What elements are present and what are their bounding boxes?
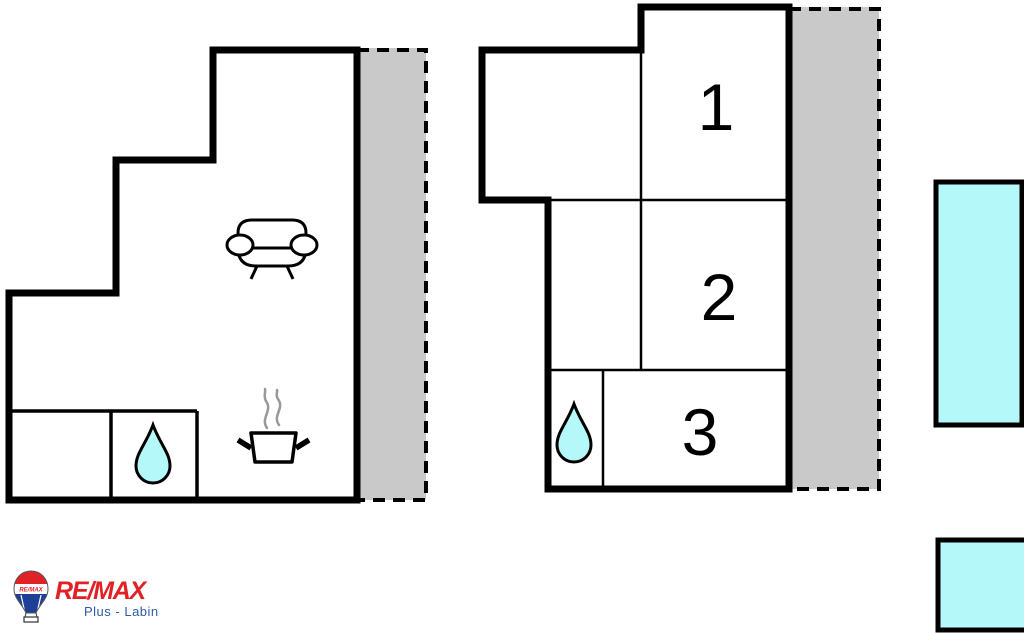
pool-rect-large xyxy=(936,182,1022,425)
balloon-band-text: RE/MAX xyxy=(19,588,43,594)
pot-body xyxy=(251,433,296,462)
balloon-envelope xyxy=(11,569,51,623)
balloon-basket xyxy=(24,617,38,622)
floor-plan-left xyxy=(9,48,426,500)
floorplan-sheet: 1 2 3 RE/MAX xyxy=(0,0,1024,633)
pool-markers xyxy=(936,182,1024,630)
remax-balloon-icon: RE/MAX xyxy=(11,569,51,623)
brand-wordmark: RE/MAX xyxy=(55,579,145,604)
room-1-label: 1 xyxy=(698,70,735,144)
plan-left-outer-walls xyxy=(9,50,357,500)
pool-rect-small xyxy=(938,540,1024,630)
plan-right-outer-walls xyxy=(482,7,789,489)
floor-plan-right: 1 2 3 xyxy=(482,7,879,489)
sofa-armrest-right xyxy=(291,235,317,255)
room-2-label: 2 xyxy=(701,260,738,334)
terrace-left xyxy=(355,48,426,500)
terrace-right xyxy=(786,7,879,489)
sofa-armrest-left xyxy=(227,235,253,255)
office-name: Plus - Labin xyxy=(84,605,159,618)
floorplan-drawing: 1 2 3 xyxy=(0,0,1024,633)
room-3-label: 3 xyxy=(682,395,719,469)
